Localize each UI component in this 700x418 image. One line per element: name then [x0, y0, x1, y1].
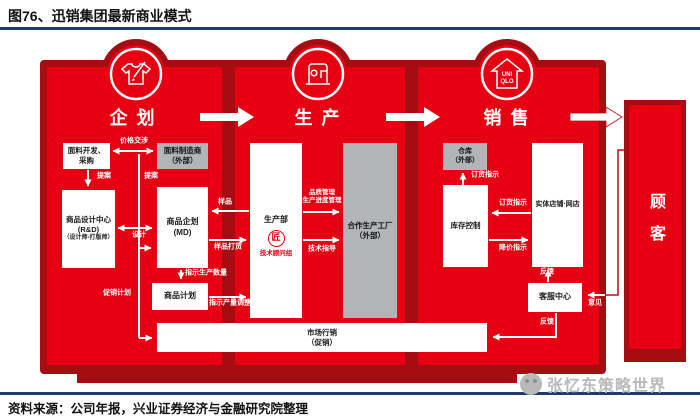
- label-quality-management: 品质管理 生产进度管理: [303, 189, 342, 205]
- customer-label: 顾客: [629, 105, 681, 345]
- label-markdown: 降价指示: [499, 245, 527, 254]
- label-promotion-plan: 促销计划: [103, 290, 131, 299]
- label-store-order: 订货指示: [499, 200, 527, 209]
- uniqlo-text-line1: UNI: [502, 72, 513, 78]
- customer-opinion-line: [606, 150, 624, 295]
- stage-label-sales: 销 售: [483, 104, 530, 130]
- box-customer-service: 客服中心: [528, 283, 582, 312]
- box-warehouse: 仓库 （外部）: [443, 143, 487, 170]
- label-proposal-left: 提案: [97, 173, 111, 182]
- label-order-quantity: 指示生产数量: [185, 270, 227, 279]
- watermark-text: 张忆东策略世界: [547, 372, 666, 396]
- box-stores: 实体店铺·网店: [532, 143, 583, 267]
- stage-label-production: 生 产: [294, 104, 341, 130]
- stage-label-planning: 企 划: [109, 104, 156, 130]
- section-divider-2: [405, 67, 418, 365]
- label-proposal-right: 提案: [144, 173, 158, 182]
- box-marketing: 市场行销 （促销）: [157, 323, 487, 352]
- source-note: 资料来源：公司年报，兴业证券经济与金融研究院整理: [8, 398, 308, 417]
- box-production-department: 生产部 匠 技术顾问组: [250, 143, 302, 318]
- box-fabric-manufacturer: 面料制造商 （外部）: [157, 143, 208, 169]
- box-inventory-control: 库存控制: [443, 185, 488, 267]
- label-price-negotiation: 价格交涉: [120, 138, 148, 147]
- title-rule: [0, 27, 700, 30]
- label-feedback-up: 反馈: [540, 269, 554, 278]
- label-warehouse-order: 订货指示: [471, 172, 499, 181]
- watermark: 张忆东策略世界: [520, 372, 666, 396]
- figure-title: 图76、迅销集团最新商业模式: [8, 6, 192, 26]
- watermark-logo-icon: [520, 373, 542, 395]
- uniqlo-text-line2: QLO: [501, 79, 514, 85]
- label-quantity-adjust: 指示产量调整: [209, 300, 251, 309]
- label-tech-guidance: 技术指导: [308, 246, 336, 255]
- box-merchandise-planning-md: 商品企划 (MD): [157, 187, 208, 268]
- label-opinion: 意见: [588, 300, 602, 309]
- box-fabric-development: 面料开发、 采购: [63, 143, 110, 169]
- label-design: 设计: [132, 232, 146, 241]
- box-partner-factory: 合作生产工厂 （外部）: [343, 143, 397, 318]
- box-design-center: 商品设计中心 (R&D) （设计师-打版师）: [62, 190, 115, 268]
- craftsman-stamp-icon: 匠: [268, 230, 285, 247]
- label-feedback-down: 反馈: [540, 319, 554, 328]
- section-divider-1: [222, 67, 235, 365]
- shape-shadow-bar: [77, 374, 517, 383]
- label-sample-order: 样品打货: [214, 244, 242, 253]
- figure-page: { "title": "图76、迅销集团最新商业模式", "source": "…: [0, 0, 700, 418]
- label-sample: 样品: [218, 199, 232, 208]
- box-product-plan: 商品计划: [152, 283, 208, 310]
